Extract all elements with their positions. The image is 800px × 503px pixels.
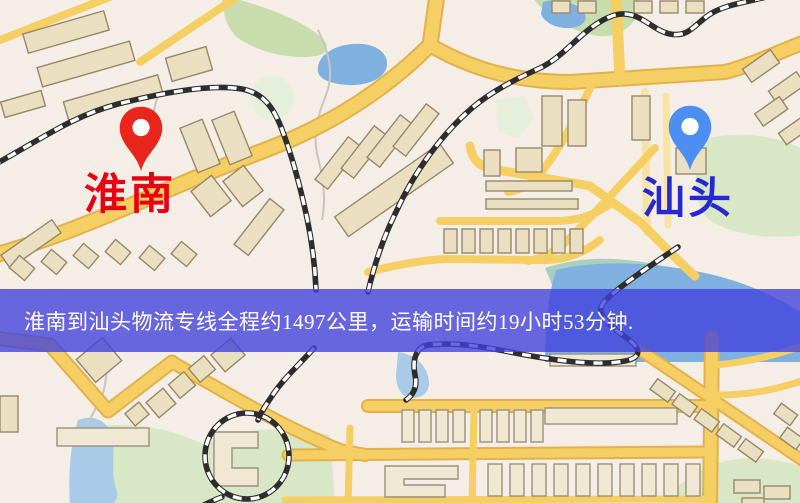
destination-city-label: 汕头: [642, 178, 734, 221]
origin-pin-icon: [118, 105, 164, 173]
map-screenshot: 淮南 汕头 淮南到汕头物流专线全程约1497公里，运输时间约19小时53分钟.: [0, 0, 800, 503]
destination-pin-icon: [667, 104, 713, 172]
route-info-text: 淮南到汕头物流专线全程约1497公里，运输时间约19小时53分钟.: [24, 289, 634, 352]
origin-city-label: 淮南: [84, 174, 176, 217]
route-info-banner: 淮南到汕头物流专线全程约1497公里，运输时间约19小时53分钟.: [0, 289, 800, 352]
map-canvas: [0, 0, 800, 503]
